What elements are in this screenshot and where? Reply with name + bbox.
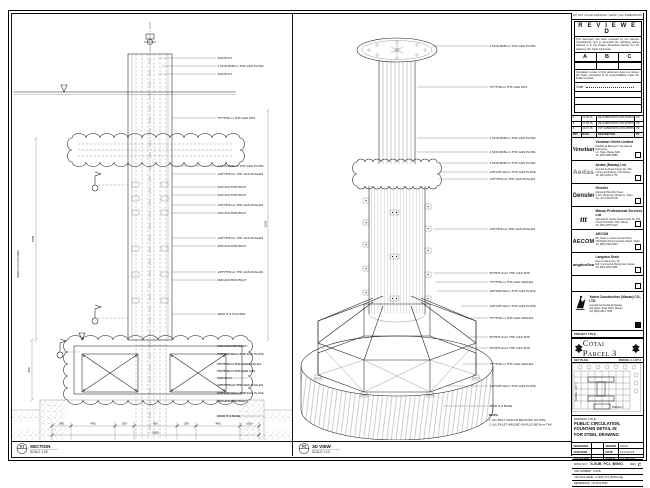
note-line: 2. ALL FILLET WELDED SHOULD BE 6mm THK. xyxy=(489,423,553,427)
label: 125*75*8mm THK G&S ANGLES xyxy=(218,203,264,207)
column-flutes xyxy=(369,186,425,314)
revision-table: C21-08-15RE-SUBMISSION FOR APPROVALPC B0… xyxy=(572,116,643,138)
flag-leaders xyxy=(63,185,128,352)
label: 4 NOS Ø25mm THK G&S PLATE xyxy=(490,161,536,165)
company-checkbox xyxy=(635,221,641,227)
dim-value: 465 xyxy=(215,422,220,426)
label: 125*75*8mm THK G&S ANGLES xyxy=(490,227,536,231)
dwg-label: DWG NO : xyxy=(574,462,588,466)
contractor-block: Yadea Construction (Macau) CO., LTD. Ave… xyxy=(572,292,643,331)
view-scale: SCALE 1:10 xyxy=(312,450,330,454)
rev-value: C xyxy=(638,462,641,467)
dim-value: 200 xyxy=(59,422,64,426)
label: 125*75*8mm THK G&S ANGLES xyxy=(218,172,264,176)
label: 125*125*12mm THK G&S PLATE xyxy=(490,384,536,388)
note-block: NOTE: 1. ALL BOLT SHOULD BE FIXING ON SI… xyxy=(489,413,553,427)
label: M20 BOLT xyxy=(218,72,233,76)
dwg-number-row: DWG NO : S-SUB_PC1_B0001 REV C xyxy=(572,460,643,469)
label: Ø200 H.S BASE xyxy=(490,404,513,408)
section-view-drawing: 200 465 200 450 200 465 200 2180 600 158… xyxy=(12,14,292,440)
label: 125*75*8mm THK G&S ANGLES xyxy=(218,236,264,240)
company-checkbox xyxy=(635,267,641,273)
label: 125*125*12mm THK G&S PLATE xyxy=(490,304,536,308)
contractor-bird-logo xyxy=(574,294,587,312)
label: 75*75*8mm THK G&S ANGLES xyxy=(490,280,534,284)
label: Ø200 H.S COLUMN xyxy=(218,312,246,316)
aedas-logo: Aedas xyxy=(573,162,594,183)
dwg-number: S-SUB_PC1_B0001 xyxy=(590,462,630,466)
label: 50*50*5.4mm THK G&S SHS xyxy=(490,335,530,339)
rev-label: REV xyxy=(630,462,636,466)
company-checkbox xyxy=(635,244,641,250)
label: 125*125*12mm THK G&S PLATE xyxy=(218,391,264,395)
company-name: AECOM xyxy=(596,232,644,236)
ornament-icon xyxy=(575,343,583,354)
column-tubes-hidden xyxy=(136,54,166,440)
reviewed-paragraph-2: Consultant review of this document does … xyxy=(575,70,641,82)
company-checkbox xyxy=(635,152,641,158)
label: 400*200*20mm THK G&S PLATE xyxy=(490,289,536,293)
view-scale: SCALE 1:25 xyxy=(30,450,48,454)
label: M20 ANCHOR BOLT xyxy=(218,344,247,348)
signature-table: DESIGNEDDRAWNCHAO CHECKED-DATE14-AUG-15 … xyxy=(572,443,643,460)
drawing-title-line: FOR STEEL DRAWING xyxy=(574,432,641,437)
level-line xyxy=(14,85,236,92)
label: M20 ANCHOR BOLT xyxy=(218,185,247,189)
company-checkbox xyxy=(635,198,641,204)
iso-labels: 4 NOS Ø25mm THK G&S PLATE 75*75*6mm THK … xyxy=(490,44,536,408)
label: M20 BOLT xyxy=(218,56,233,60)
project-title-banner: Cotai Parcel 3 xyxy=(572,338,643,358)
company-name: Macau Professional Services Ltd. xyxy=(596,209,644,217)
view-title: 3D VIEW xyxy=(312,444,332,449)
label: M20 BOLT xyxy=(218,376,233,380)
project-title-label: PROJECT TITLE xyxy=(572,331,643,338)
company-row-aecom: AECOM AECOM 8/F, Tower 2, Grand Central … xyxy=(572,230,643,253)
keyplan-label: KEY PLAN xyxy=(574,359,588,362)
company-row-aedas: Aedas Aedas (Macau) Ltd. Avenida da Prai… xyxy=(572,161,643,184)
label: 75*75*8mm THK G&S ANGLES xyxy=(490,362,534,366)
label: M20 ANCHOR BOLT xyxy=(218,193,247,197)
dim-value: 200 xyxy=(184,422,189,426)
iso-view-tag: 02 3D VIEW SCALE 1:10 xyxy=(296,442,376,455)
dim-value: 200 xyxy=(247,422,252,426)
status-b: B xyxy=(597,53,619,62)
dim-value: 450 xyxy=(153,422,158,426)
company-row-empty xyxy=(572,276,643,292)
label: 125*125*12mm THK G&S PLATE xyxy=(490,170,536,174)
reviewed-date-row: Date : xyxy=(575,82,641,91)
label: 75*75*8mm THK G&S ANGLES xyxy=(218,362,262,366)
keyplan-parcel-label: PARCEL 1, LOT 2 xyxy=(619,359,641,362)
label: 4 NOS Ø25mm THK G&S PLATE xyxy=(218,164,264,168)
label: M20 ANCHOR BOLT xyxy=(218,278,247,282)
company-name: Langdon Seah xyxy=(596,255,644,259)
label: 400*200*20mm THK G&S PLATE xyxy=(218,352,264,356)
label: 4 NOS Ø25mm THK G&S PLATE xyxy=(490,136,536,140)
status-letters: A B C xyxy=(575,52,641,63)
company-name: Aedas (Macau) Ltd. xyxy=(596,163,644,167)
reference-row: REFERENCE : ON FILE 9000 xyxy=(572,481,643,487)
drawing-sheet: 200 465 200 450 200 465 200 2180 600 158… xyxy=(0,0,650,488)
mps-logo: ttt xyxy=(573,208,594,229)
reviewed-title: R E V I E W E D xyxy=(575,22,641,37)
company-row-mps: ttt Macau Professional Services Ltd. Ala… xyxy=(572,207,643,230)
cylinder-hatch xyxy=(301,366,493,440)
label: 125*75*8mm THK G&S ANGLES xyxy=(218,270,264,274)
title-block: DO NOT SCALE DRAWING. VERIFY ALL DIMENSI… xyxy=(571,13,643,456)
blank-row xyxy=(575,104,641,111)
dim-right: 2265 xyxy=(264,220,268,227)
label: 75*75*8mm THK G&S ANGLES xyxy=(490,316,534,320)
keyplan-side-label: PARCEL 1, LOT 1 xyxy=(575,382,578,401)
company-name: Venetian Orient Limited xyxy=(596,140,644,144)
label: 75*75*8mm THK G&S SHS xyxy=(218,369,256,373)
dim-total: 2180 xyxy=(152,431,159,435)
date-blank-line xyxy=(586,84,634,88)
margin-label: Ø200 H.S COLUMN xyxy=(16,250,20,277)
label: 125*75*8mm THK G&S ANGLES xyxy=(218,383,264,387)
company-checkbox xyxy=(635,283,641,289)
label: M20 ANCHOR BOLT xyxy=(218,244,247,248)
label: 4 NOS Ø25mm THK G&S PLATE xyxy=(218,64,264,68)
label: 50*50*5.4mm THK G&S SHS xyxy=(490,346,530,350)
label: 50*50*5.4mm THK G&S SHS xyxy=(490,271,530,275)
label: M20 ANCHOR BOLT xyxy=(218,211,247,215)
top-plate-inner xyxy=(362,41,432,60)
status-checkboxes xyxy=(575,63,641,70)
company-row-langdonseah: LangdonSeah Langdon Seah Rua do Campo No… xyxy=(572,253,643,276)
label: 4 NOS Ø25mm THK G&S PLATE xyxy=(490,44,536,48)
contractor-address: Avenida Comercial de Macau,AIA Tower, Su… xyxy=(589,304,642,314)
label: 75*75*6mm THK G&S SHS xyxy=(218,116,256,120)
view-title: SECTION xyxy=(30,444,51,449)
drawing-title-block: DRAWING TITLE: PUBLIC CIRCULATION, FOUNT… xyxy=(572,416,643,443)
aecom-logo: AECOM xyxy=(573,231,594,252)
company-name: Gensler xyxy=(596,186,644,190)
contractor-mark xyxy=(635,322,641,328)
tube-cluster xyxy=(379,61,415,164)
note-line: 1. ALL BOLT SHOULD BE FIXING ON SITE. xyxy=(489,418,546,422)
key-plan: KEY PLAN PARCEL 1, LOT 2 PARCEL 1, xyxy=(572,358,643,416)
keyplan-bottom-label: PARCEL 3 xyxy=(612,406,624,409)
label: Ø200 H.S BASE xyxy=(218,414,241,418)
dim-left-upper: 1585 xyxy=(31,235,35,242)
view-number: 01 xyxy=(20,444,25,449)
note-title: NOTE: xyxy=(489,413,499,417)
status-a: A xyxy=(575,53,597,62)
venetian-logo: Venetian xyxy=(573,139,594,160)
label: 125*75*8mm THK G&S ANGLES xyxy=(490,177,536,181)
section-labels: M20 BOLT 4 NOS Ø25mm THK G&S PLATE M20 B… xyxy=(218,56,264,418)
date-label: Date : xyxy=(577,85,586,89)
label-strip-line xyxy=(11,441,571,442)
do-not-scale-note: DO NOT SCALE DRAWING. VERIFY ALL DIMENSI… xyxy=(572,13,643,20)
label: 4 NOS Ø25mm THK G&S PLATE xyxy=(490,150,536,154)
label: 75*75*6mm THK G&S SHS xyxy=(490,85,528,89)
status-c: C xyxy=(619,53,641,62)
gensler-logo: Gensler xyxy=(573,185,594,206)
detail-flags xyxy=(57,172,101,358)
iso-view-drawing: 4 NOS Ø25mm THK G&S PLATE 75*75*6mm THK … xyxy=(293,14,570,440)
company-row-gensler: Gensler Gensler Roppongi Hills Mori Towe… xyxy=(572,184,643,207)
dim-value: 200 xyxy=(122,422,127,426)
tube-cluster-lines xyxy=(383,61,411,164)
frame-braces xyxy=(318,343,476,392)
contractor-name: Yadea Construction (Macau) CO., LTD. xyxy=(589,295,642,303)
cap-hidden-lines xyxy=(78,144,234,156)
ornament-icon xyxy=(632,343,640,354)
section-view-tag: 01 SECTION SCALE 1:25 xyxy=(14,442,94,455)
cloud-ring xyxy=(353,159,442,189)
label: M20 ANCHOR BOLT xyxy=(218,399,247,403)
keyplan-map: PARCEL 1, LOT 1 PARCEL 3 xyxy=(572,363,641,412)
langdonseah-logo: LangdonSeah xyxy=(573,254,594,275)
dim-left-lower: 600 xyxy=(27,367,31,372)
dim-value: 465 xyxy=(90,422,95,426)
view-number: 02 xyxy=(302,444,307,449)
column-base-arc xyxy=(369,314,425,322)
project-title: Cotai Parcel 3 xyxy=(583,338,633,358)
reviewed-paragraph-1: This document has been reviewed by the r… xyxy=(575,37,641,52)
reviewed-stamp: R E V I E W E D This document has been r… xyxy=(572,20,643,116)
company-row-venetian: Venetian Venetian Orient Limited Estrada… xyxy=(572,138,643,161)
company-checkbox xyxy=(635,175,641,181)
